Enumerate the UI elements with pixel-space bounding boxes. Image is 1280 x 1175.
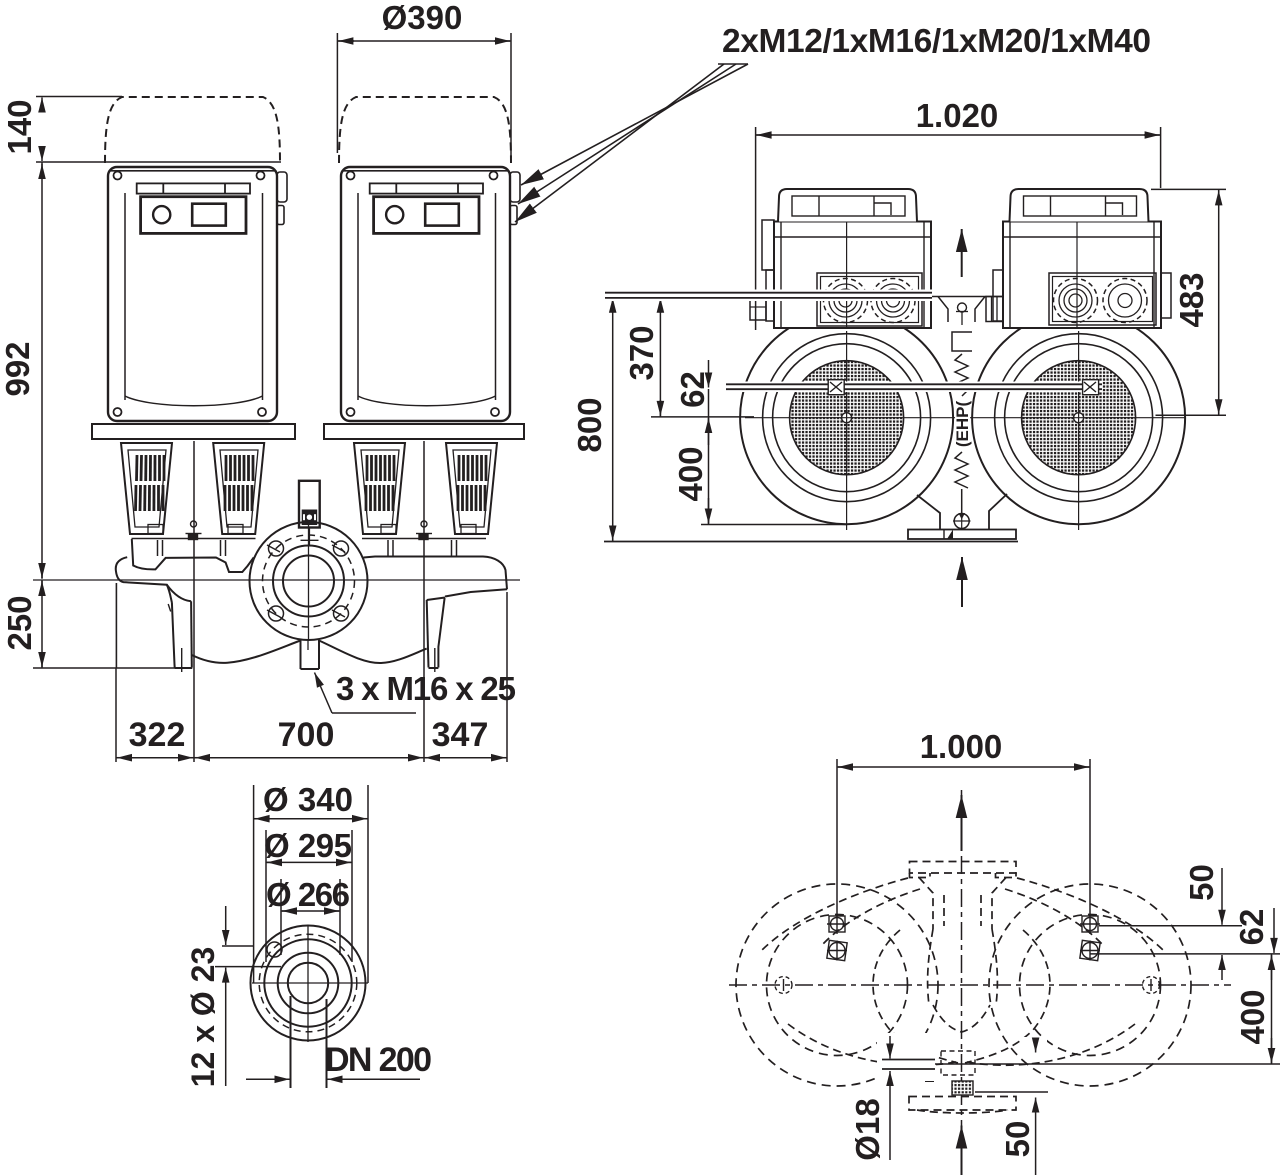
svg-text:140: 140	[1, 99, 38, 154]
svg-text:1.000: 1.000	[920, 728, 1003, 765]
svg-text:370: 370	[623, 325, 660, 380]
svg-text:700: 700	[278, 716, 335, 754]
svg-text:250: 250	[1, 595, 38, 650]
svg-text:62: 62	[1233, 909, 1270, 946]
svg-text:1.020: 1.020	[916, 97, 999, 134]
svg-text:Ø18: Ø18	[849, 1098, 886, 1160]
svg-text:(EHP(: (EHP(	[953, 401, 972, 448]
svg-text:Ø 295: Ø 295	[264, 827, 352, 864]
svg-text:Ø 340: Ø 340	[263, 781, 353, 818]
svg-text:Ø 266: Ø 266	[266, 876, 350, 913]
svg-text:12 x Ø 23: 12 x Ø 23	[185, 947, 221, 1088]
svg-text:Ø390: Ø390	[382, 0, 463, 36]
svg-text:322: 322	[129, 716, 186, 754]
svg-text:DN 200: DN 200	[325, 1041, 432, 1079]
svg-text:400: 400	[672, 446, 709, 501]
svg-text:50: 50	[1183, 864, 1220, 901]
svg-text:400: 400	[1234, 989, 1271, 1044]
svg-text:62: 62	[674, 371, 711, 408]
svg-text:347: 347	[432, 716, 489, 754]
svg-text:992: 992	[0, 341, 36, 396]
svg-text:483: 483	[1173, 272, 1210, 327]
svg-text:50: 50	[999, 1121, 1036, 1158]
svg-text:2xM12/1xM16/1xM20/1xM40: 2xM12/1xM16/1xM20/1xM40	[722, 23, 1151, 60]
svg-text:800: 800	[571, 397, 608, 452]
svg-text:3 x M16 x 25: 3 x M16 x 25	[336, 670, 516, 707]
